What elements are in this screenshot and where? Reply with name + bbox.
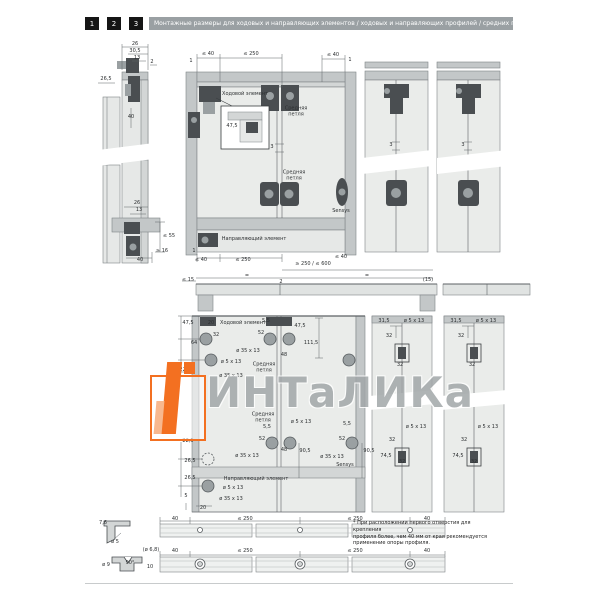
- technical-drawing: [0, 0, 600, 600]
- catalog-page: 1 2 3 Монтажные размеры для ходовых и на…: [0, 0, 600, 600]
- footnote: * При расположении первого отверстия для…: [353, 520, 497, 547]
- watermark-logo-dot: [184, 362, 195, 374]
- watermark-text: ИНТаЛИКа: [206, 368, 474, 417]
